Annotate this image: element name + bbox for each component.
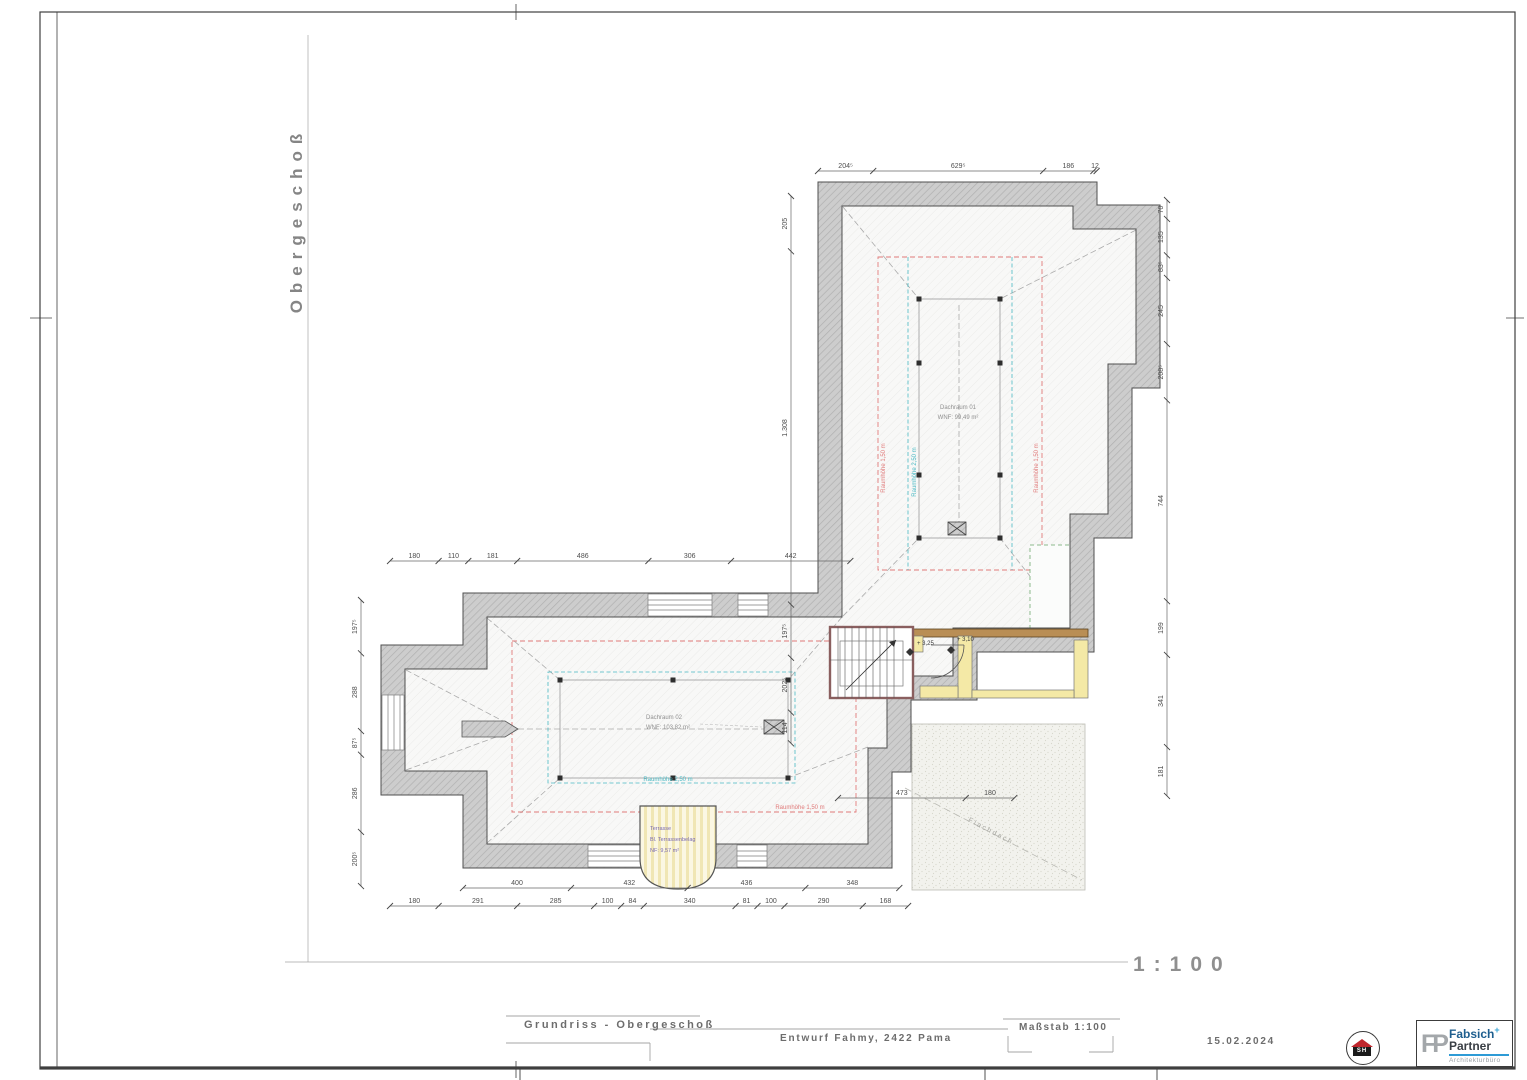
- flat-roof-area: [905, 724, 1085, 890]
- svg-text:436: 436: [741, 880, 753, 887]
- svg-text:285: 285: [550, 898, 562, 905]
- svg-text:186: 186: [1062, 163, 1074, 170]
- svg-text:400: 400: [511, 880, 523, 887]
- builder-stamp: SH: [1346, 1031, 1380, 1065]
- svg-text:197⁵: 197⁵: [782, 624, 789, 639]
- svg-text:486: 486: [577, 553, 589, 560]
- svg-text:202⁵: 202⁵: [782, 678, 789, 693]
- svg-text:87⁵: 87⁵: [352, 737, 359, 748]
- svg-text:181: 181: [1158, 766, 1165, 778]
- date-label: 15.02.2024: [1207, 1036, 1275, 1047]
- logo-text: Fabsich+ Partner Architekturbüro: [1449, 1024, 1512, 1064]
- svg-text:200⁵: 200⁵: [352, 852, 359, 867]
- dim-chain-west_v: 197⁵28887⁵286200⁵: [352, 597, 364, 889]
- scale-label: Maßstab 1:100: [1019, 1022, 1107, 1033]
- drawing-title: Grundriss - Obergeschoß: [524, 1019, 715, 1031]
- svg-text:81: 81: [743, 898, 751, 905]
- terrace-label: Terrasse: [650, 826, 671, 832]
- svg-text:306: 306: [684, 553, 696, 560]
- dim-chain-mid_h: 180110181486306442: [387, 553, 853, 564]
- floor-plan-canvas: 204⁵629⁵186122051.308197⁵202⁵1147013583⁵…: [0, 0, 1527, 1080]
- svg-text:114: 114: [782, 722, 789, 733]
- stamp-roof-icon: [1351, 1039, 1373, 1047]
- svg-text:341: 341: [1158, 695, 1165, 707]
- architect-logo: FP Fabsich+ Partner Architekturbüro: [1416, 1020, 1513, 1067]
- logo-monogram-icon: FP: [1417, 1024, 1449, 1064]
- room-label: Dachraum 01: [940, 405, 977, 411]
- height-label-250: Raumhöhe 2,50 m: [912, 447, 918, 496]
- dim-chain-top: 204⁵629⁵18612: [815, 163, 1100, 174]
- svg-text:181: 181: [487, 553, 499, 560]
- svg-text:180: 180: [408, 898, 420, 905]
- svg-text:208⁵: 208⁵: [1158, 365, 1165, 380]
- sheet-frame: [30, 4, 1524, 1078]
- svg-text:110: 110: [448, 553, 459, 560]
- svg-text:84: 84: [629, 898, 637, 905]
- stamp-text: SH: [1353, 1047, 1371, 1056]
- wall-stub: [462, 721, 518, 737]
- svg-text:442: 442: [785, 553, 797, 560]
- staircase: [830, 627, 913, 698]
- logo-name2: Partner: [1449, 1040, 1509, 1053]
- room-label: Dachraum 02: [646, 715, 683, 721]
- svg-text:290: 290: [818, 898, 830, 905]
- sheet-side-title: Obergeschoß: [287, 108, 309, 332]
- svg-text:340: 340: [684, 898, 696, 905]
- svg-text:168: 168: [880, 898, 892, 905]
- project-line: Entwurf Fahmy, 2422 Pama: [780, 1033, 952, 1044]
- svg-text:83⁵: 83⁵: [1158, 261, 1165, 272]
- svg-text:199: 199: [1158, 622, 1165, 634]
- logo-rule: [1449, 1054, 1509, 1056]
- height-label-250: Raumhöhe 2,50 m: [643, 777, 692, 783]
- level-label: + 3,10: [957, 637, 975, 643]
- svg-text:197⁵: 197⁵: [352, 619, 359, 634]
- svg-text:245: 245: [1158, 305, 1165, 317]
- svg-text:473: 473: [896, 790, 908, 797]
- logo-subtitle: Architekturbüro: [1449, 1057, 1509, 1064]
- svg-text:629⁵: 629⁵: [951, 163, 966, 170]
- svg-text:180: 180: [408, 553, 420, 560]
- svg-text:70: 70: [1158, 205, 1165, 213]
- drawing-sheet: 204⁵629⁵186122051.308197⁵202⁵1147013583⁵…: [0, 0, 1527, 1080]
- height-label-150: Raumhöhe 1,50 m: [1034, 443, 1040, 492]
- svg-text:432: 432: [623, 880, 635, 887]
- svg-text:180: 180: [984, 790, 996, 797]
- height-label-150: Raumhöhe 1,50 m: [881, 443, 887, 492]
- svg-text:205: 205: [782, 218, 789, 230]
- svg-text:100: 100: [765, 898, 777, 905]
- svg-text:744: 744: [1158, 495, 1165, 507]
- svg-text:204⁵: 204⁵: [838, 163, 853, 170]
- svg-text:291: 291: [472, 898, 484, 905]
- svg-text:1.308: 1.308: [782, 419, 789, 437]
- room-label: WNF: 103,82 m²: [646, 725, 690, 731]
- height-label-150: Raumhöhe 1,50 m: [775, 805, 824, 811]
- svg-text:135: 135: [1158, 231, 1165, 243]
- svg-text:286: 286: [352, 787, 359, 799]
- level-label: + 3,25: [917, 641, 935, 647]
- scale-display: 1:100: [1133, 953, 1232, 977]
- svg-text:12: 12: [1091, 163, 1099, 170]
- timber-wall: [913, 629, 1088, 637]
- terrace-label: Bl. Terrassenbelag: [650, 837, 695, 843]
- terrace-label: NF: 9,57 m²: [650, 848, 679, 854]
- svg-text:100: 100: [602, 898, 614, 905]
- svg-text:288: 288: [352, 686, 359, 698]
- svg-text:348: 348: [846, 880, 858, 887]
- room-label: WNF: 99,49 m²: [938, 415, 979, 421]
- dim-chain-bottom2: 1802912851008434081100290168: [387, 898, 911, 909]
- logo-plus: +: [1494, 1025, 1499, 1035]
